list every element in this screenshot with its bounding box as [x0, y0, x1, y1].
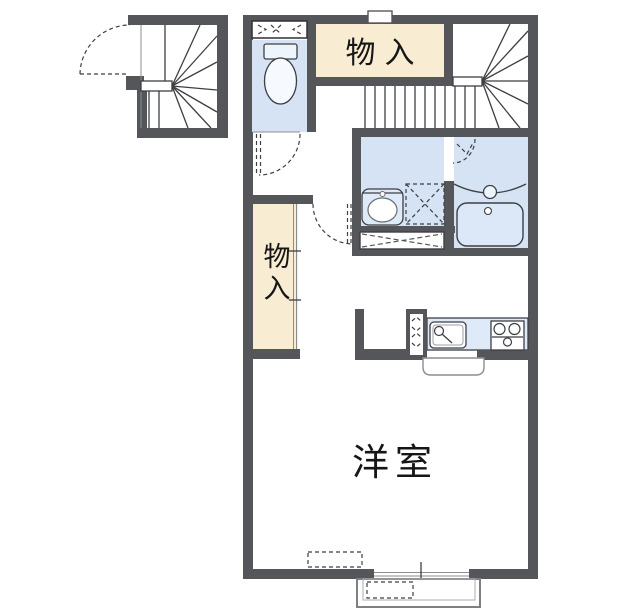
toilet-icon	[264, 44, 297, 104]
bath-faucet-icon	[484, 186, 497, 199]
hall-door-swing-icon	[313, 204, 353, 245]
storage-left-label: 物入	[250, 232, 298, 316]
storage-top-label: 物入	[310, 24, 450, 76]
washroom-folding-door-icon	[360, 232, 444, 249]
toilet-door-swing-icon	[253, 132, 300, 175]
pipe-space-icon	[406, 309, 427, 360]
vent-louver-icon	[252, 21, 307, 38]
western-room-label: 洋室	[292, 436, 492, 482]
porch-icon	[357, 579, 480, 607]
stove-icon	[491, 321, 524, 350]
door-swing-icon	[80, 25, 130, 74]
staircase-upper-left	[80, 15, 228, 138]
top-vent-notch	[368, 11, 392, 23]
winder-fan-lines	[482, 24, 528, 128]
kitchen-cabinet-outline	[423, 358, 484, 375]
kitchen-sink-icon	[430, 322, 466, 348]
floor-plan-drawing	[0, 0, 640, 616]
winder-fan-lines	[172, 25, 217, 128]
floor-marker-dashed-box	[308, 552, 362, 567]
washbasin-icon	[362, 189, 403, 225]
floor-plan: 物入 物入 洋室	[0, 0, 640, 616]
